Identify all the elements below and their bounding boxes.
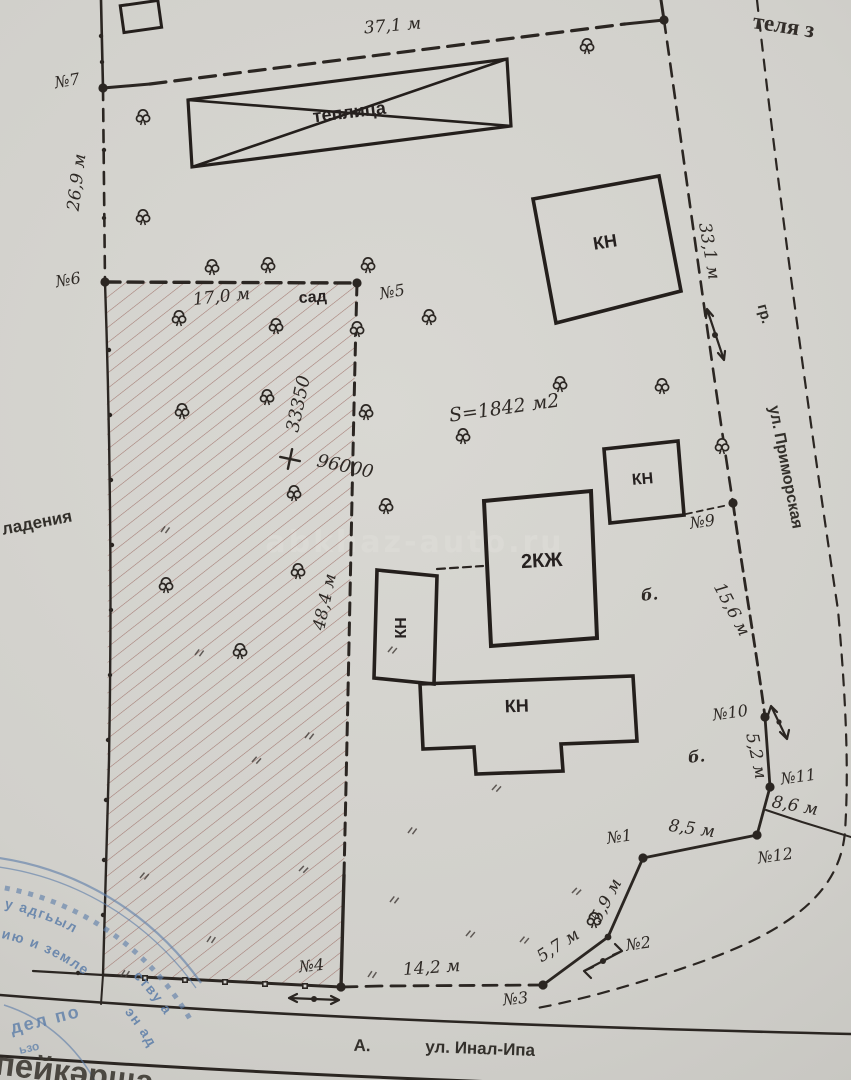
dim-left: 26,9 м xyxy=(63,153,90,213)
tree-icon xyxy=(137,110,150,125)
tree-icon xyxy=(362,258,375,273)
residential-label: 2КЖ xyxy=(520,549,563,573)
boundary-abbr-label: гр. xyxy=(754,302,775,325)
tree-icon xyxy=(380,499,393,514)
point-n4: №4 xyxy=(297,955,325,977)
point-n12: №12 xyxy=(755,844,794,868)
stamp-title-text: пейкəрша xyxy=(0,1044,157,1080)
small-square-building xyxy=(120,0,161,32)
tree-icon xyxy=(457,429,470,444)
point-n5: №5 xyxy=(377,280,406,303)
garden-label: сад xyxy=(298,288,327,307)
corner-text-fragment: теля з xyxy=(751,8,816,42)
tree-icon xyxy=(360,405,373,420)
greenhouse-label: теплица xyxy=(312,98,388,127)
tree-icon xyxy=(262,258,275,273)
kn-bottom-building xyxy=(420,676,637,774)
kn-top-label: КН xyxy=(592,230,619,254)
site-plan-drawing: abkhaz-auto.ru xyxy=(0,0,851,1080)
building-connector xyxy=(437,566,483,569)
kn-small-label: КН xyxy=(631,470,654,489)
area-label: S=1842 м2 xyxy=(448,389,561,426)
road-letter-label: А. xyxy=(353,1036,371,1056)
tree-icon xyxy=(656,379,669,394)
aux-mark-1: б. xyxy=(640,584,659,604)
tree-icon xyxy=(716,439,729,454)
svg-text:ию и земле: ию и земле xyxy=(0,925,93,978)
aux-mark-2: б. xyxy=(687,746,706,766)
point-n9: №9 xyxy=(687,510,716,532)
tree-icon xyxy=(206,260,219,275)
tree-icon xyxy=(137,210,150,225)
scanned-site-plan: abkhaz-auto.ru xyxy=(0,0,851,1080)
point-n7: №7 xyxy=(52,69,82,92)
dim-8-5: 8,5 м xyxy=(667,816,716,842)
street-bottom-label: ул. Инал-Ипа xyxy=(425,1037,536,1060)
hatched-parcel xyxy=(103,282,357,987)
svg-text:эн ад: эн ад xyxy=(122,1004,161,1050)
kn-left-label: КН xyxy=(393,617,410,638)
dim-8-6: 8,6 м xyxy=(770,792,819,820)
dim-top: 37,1 м xyxy=(363,14,422,39)
point-n3: №3 xyxy=(501,988,529,1010)
tree-icon xyxy=(581,39,594,54)
ownership-fragment: ладения xyxy=(0,506,73,538)
point-n2: №2 xyxy=(623,932,652,954)
point-n6: №6 xyxy=(53,268,82,291)
stamp-ring-inner-text: ию и земле xyxy=(0,925,93,978)
street-right-label: ул. Приморская xyxy=(765,404,806,530)
tree-icon xyxy=(423,310,436,325)
point-n10: №10 xyxy=(710,701,749,725)
point-n11: №11 xyxy=(778,765,817,789)
stamp-dept-text: дел по xyxy=(8,1001,82,1038)
dim-5-9: 5,9 м xyxy=(587,875,627,925)
dim-bottom: 14,2 м xyxy=(402,956,461,980)
stamp-ring-inner-text-b: эн ад xyxy=(122,1004,161,1050)
point-n1: №1 xyxy=(604,825,633,847)
kn-bottom-label: КН xyxy=(504,696,529,717)
